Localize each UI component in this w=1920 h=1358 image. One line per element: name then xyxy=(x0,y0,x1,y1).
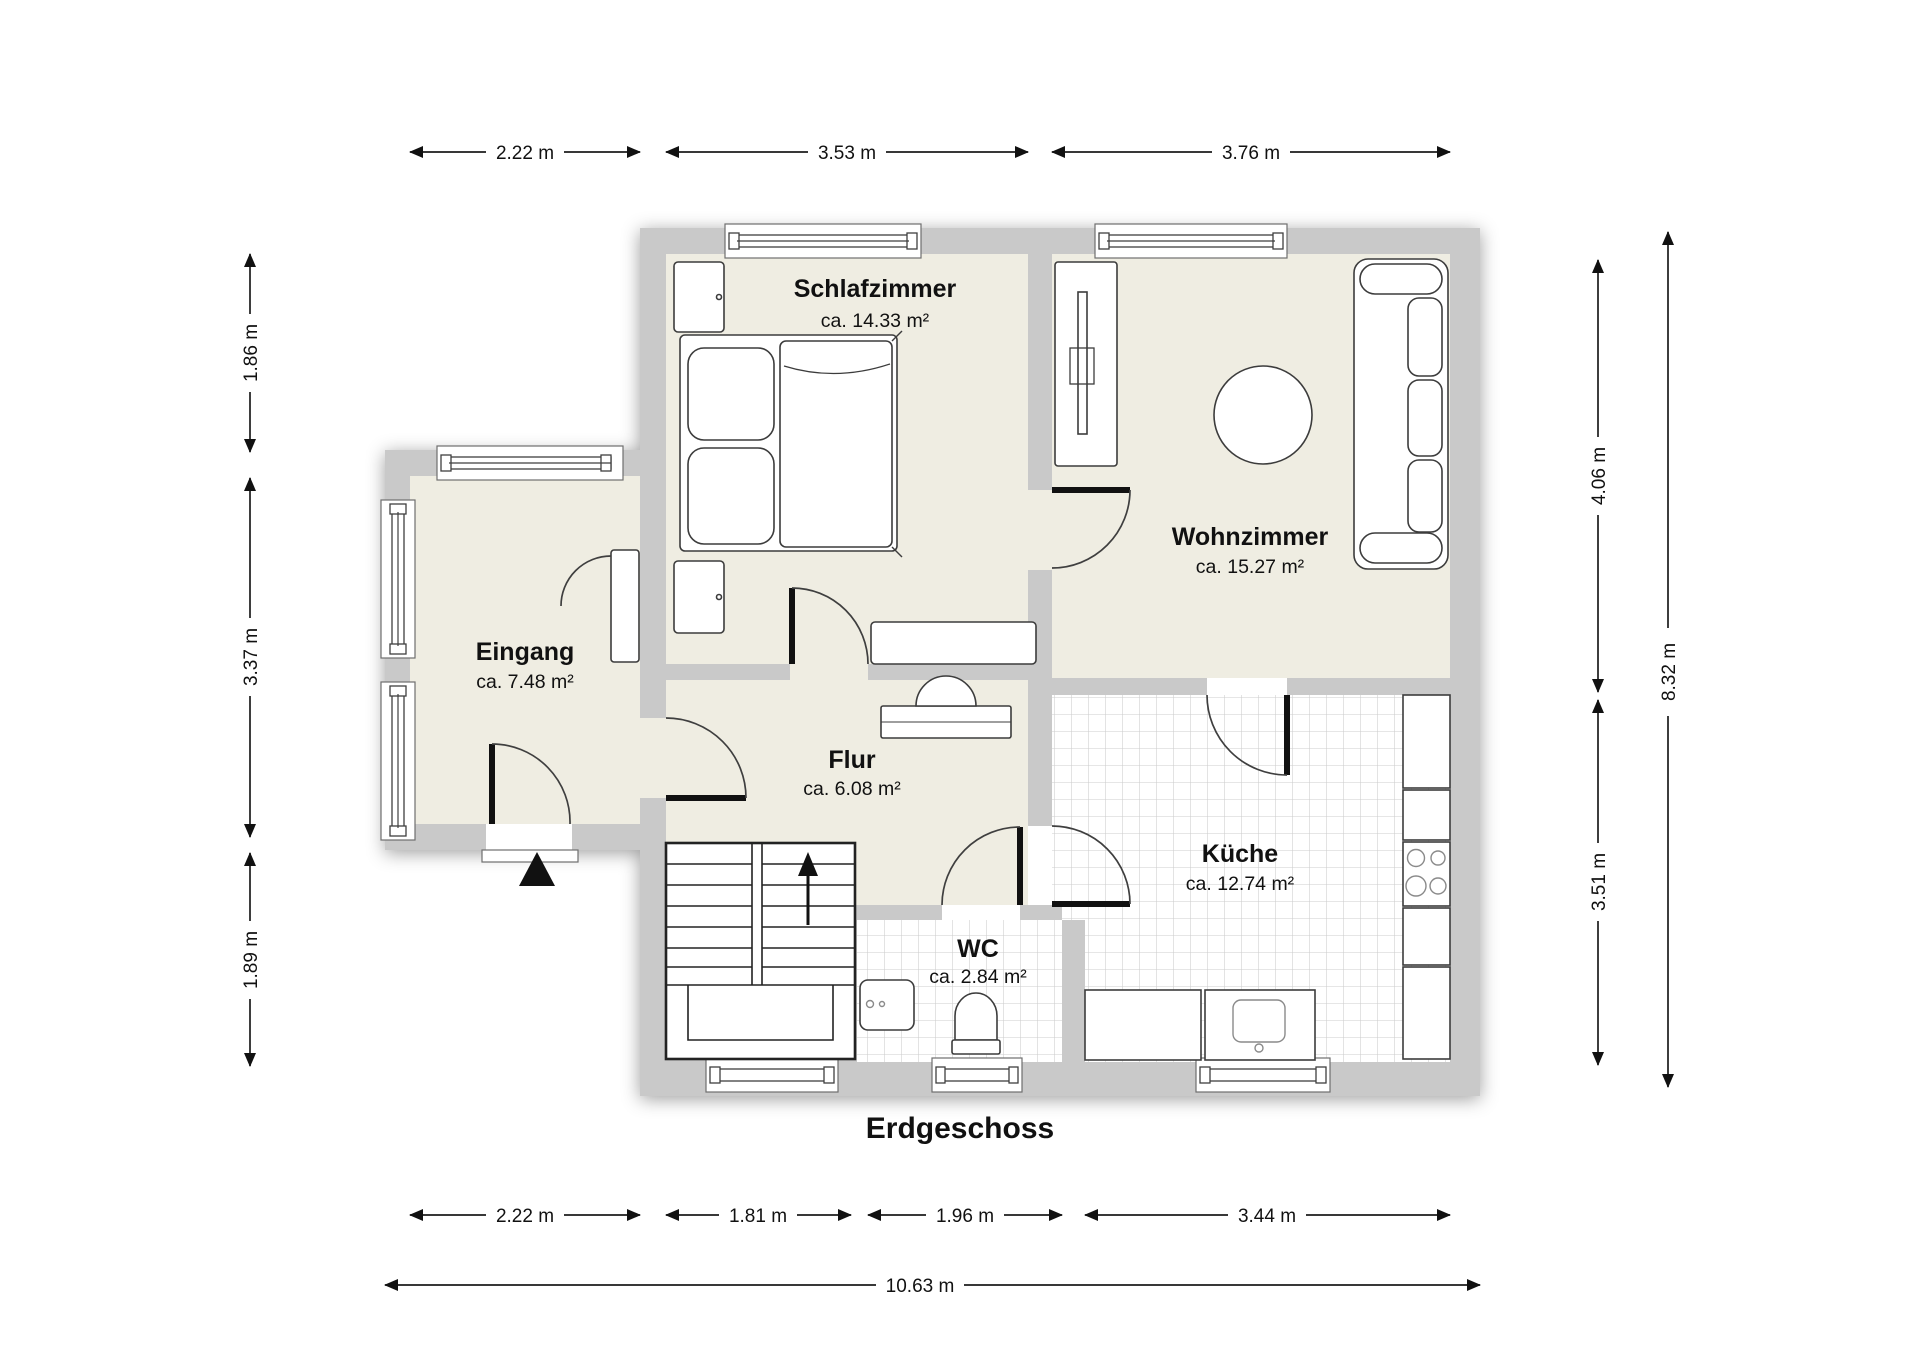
window-eingang-left-upper xyxy=(381,500,415,658)
label-wc: WC xyxy=(957,935,999,963)
dim-bottom-4: 3.44 m xyxy=(1085,1202,1450,1228)
svg-text:3.76 m: 3.76 m xyxy=(1222,143,1280,164)
wall-wohn-kueche-left xyxy=(1052,678,1207,695)
tv-icon xyxy=(1078,292,1087,434)
svg-text:3.37 m: 3.37 m xyxy=(241,628,262,686)
svg-text:1.81 m: 1.81 m xyxy=(729,1206,787,1227)
label-kueche: Küche xyxy=(1202,840,1279,868)
sofa-armrest-top xyxy=(1360,264,1442,294)
dim-top-2: 3.53 m xyxy=(666,139,1028,165)
doorway-wc xyxy=(942,905,1020,920)
window-schlafzimmer xyxy=(725,224,921,258)
dim-top-3: 3.76 m xyxy=(1052,139,1450,165)
toilet xyxy=(952,993,1000,1054)
svg-text:8.32 m: 8.32 m xyxy=(1659,643,1680,701)
kitchen-sink-unit xyxy=(1205,990,1315,1060)
dim-bottom-2: 1.81 m xyxy=(666,1202,851,1228)
round-table xyxy=(1214,366,1312,464)
area-wohnzimmer: ca. 15.27 m² xyxy=(1196,556,1305,578)
window-kueche-bottom xyxy=(1196,1058,1330,1092)
svg-text:3.44 m: 3.44 m xyxy=(1238,1206,1296,1227)
area-schlafzimmer: ca. 14.33 m² xyxy=(821,310,930,332)
dim-top-1: 2.22 m xyxy=(410,139,640,165)
wall-schlafzimmer-flur-left xyxy=(666,664,790,680)
floorplan-drawing: Schlafzimmer ca. 14.33 m² Wohnzimmer ca.… xyxy=(0,0,1920,1358)
sofa xyxy=(1354,259,1448,569)
dim-right-1: 4.06 m xyxy=(1585,260,1611,692)
tv-cabinet xyxy=(1055,262,1117,466)
svg-text:3.53 m: 3.53 m xyxy=(818,143,876,164)
staircase xyxy=(666,843,855,1059)
window-wc-bottom xyxy=(932,1058,1022,1092)
svg-text:3.51 m: 3.51 m xyxy=(1589,853,1610,911)
wall-wohn-kueche-right xyxy=(1287,678,1450,695)
svg-text:2.22 m: 2.22 m xyxy=(496,1206,554,1227)
wall-wc-top-left xyxy=(843,905,942,920)
sofa-back-cushion-2 xyxy=(1408,380,1442,456)
svg-text:1.96 m: 1.96 m xyxy=(936,1206,994,1227)
duvet xyxy=(780,341,892,547)
kitchen-faucet xyxy=(1255,1044,1263,1052)
dim-right-total: 8.32 m xyxy=(1655,232,1681,1087)
kitchen-unit-2 xyxy=(1403,790,1450,840)
sofa-armrest-bottom xyxy=(1360,533,1442,563)
dim-left-2: 3.37 m xyxy=(237,478,263,837)
doorway-wohnzimmer xyxy=(1028,490,1052,570)
kitchen-unit-4 xyxy=(1403,967,1450,1059)
nightstand-bottom-knob xyxy=(717,595,722,600)
pillow-1 xyxy=(688,348,774,440)
wall-schlaf-wohn-upper xyxy=(1028,254,1052,490)
stove xyxy=(1403,842,1450,906)
dim-bottom-3: 1.96 m xyxy=(868,1202,1062,1228)
kitchen-unit-3 xyxy=(1403,908,1450,965)
svg-text:2.22 m: 2.22 m xyxy=(496,143,554,164)
dim-bottom-total: 10.63 m xyxy=(385,1272,1480,1298)
pillow-2 xyxy=(688,448,774,544)
wall-wc-top-right xyxy=(1020,905,1062,920)
dim-bottom-1: 2.22 m xyxy=(410,1202,640,1228)
doorway-schlafzimmer xyxy=(790,664,868,680)
double-bed xyxy=(680,331,902,557)
window-treppe-bottom xyxy=(706,1058,838,1092)
svg-text:1.89 m: 1.89 m xyxy=(241,931,262,989)
dim-left-1: 1.86 m xyxy=(237,254,263,452)
area-eingang: ca. 7.48 m² xyxy=(476,671,574,693)
kitchen-unit-5 xyxy=(1085,990,1201,1060)
wc-sink xyxy=(860,980,914,1030)
doorway-eingang-flur xyxy=(640,718,666,798)
svg-text:4.06 m: 4.06 m xyxy=(1589,447,1610,505)
dim-left-3: 1.89 m xyxy=(237,853,263,1066)
window-eingang-left-lower xyxy=(381,682,415,840)
dim-right-2: 3.51 m xyxy=(1585,700,1611,1065)
label-wohnzimmer: Wohnzimmer xyxy=(1172,523,1329,551)
doorway-flur-kueche xyxy=(1028,826,1052,905)
kitchen-sink xyxy=(1233,1000,1285,1042)
doorway-wohn-kueche xyxy=(1207,678,1287,695)
doorway-entrance xyxy=(486,824,572,850)
nightstand-top-knob xyxy=(717,295,722,300)
area-flur: ca. 6.08 m² xyxy=(803,778,901,800)
label-eingang: Eingang xyxy=(476,638,575,666)
sofa-back-cushion-3 xyxy=(1408,460,1442,532)
toilet-tank xyxy=(952,1040,1000,1054)
kitchen-unit-1 xyxy=(1403,695,1450,788)
floorplan-page: Schlafzimmer ca. 14.33 m² Wohnzimmer ca.… xyxy=(0,0,1920,1358)
floor-title: Erdgeschoss xyxy=(866,1112,1054,1145)
entrance-sill xyxy=(482,850,578,862)
window-eingang-top xyxy=(437,446,623,480)
wall-wc-right xyxy=(1062,920,1085,1062)
wall-flur-kueche xyxy=(1028,695,1052,826)
label-schlafzimmer: Schlafzimmer xyxy=(794,275,957,303)
area-kueche: ca. 12.74 m² xyxy=(1186,873,1295,895)
label-flur: Flur xyxy=(828,746,875,774)
svg-text:1.86 m: 1.86 m xyxy=(241,324,262,382)
sofa-back-cushion-1 xyxy=(1408,298,1442,376)
svg-text:10.63 m: 10.63 m xyxy=(886,1276,955,1297)
area-wc: ca. 2.84 m² xyxy=(929,966,1027,988)
window-wohnzimmer xyxy=(1095,224,1287,258)
sideboard-schlafzimmer xyxy=(871,622,1036,664)
